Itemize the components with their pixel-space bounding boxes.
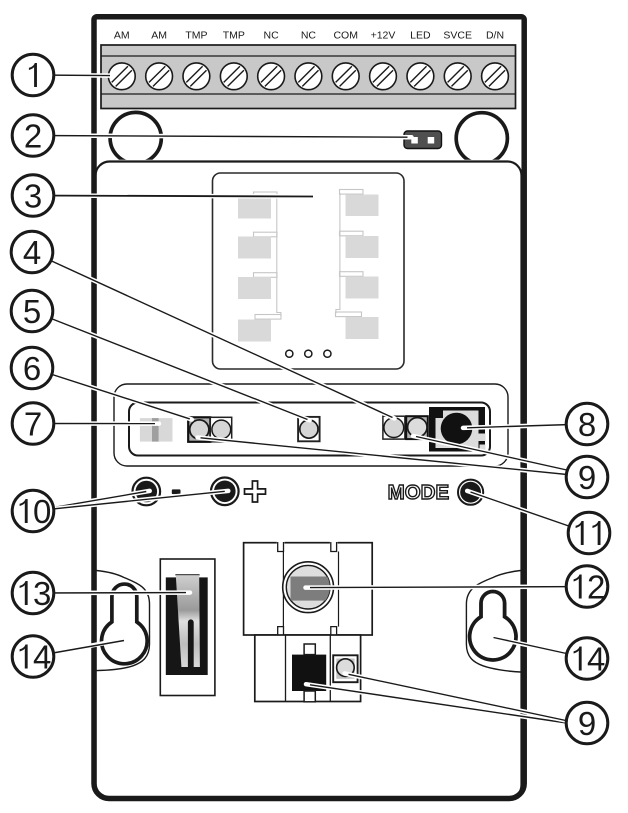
- svg-text:LED: LED: [410, 30, 431, 42]
- svg-text:5: 5: [23, 293, 41, 330]
- svg-text:NC: NC: [301, 30, 317, 42]
- svg-text:AM: AM: [151, 30, 167, 42]
- svg-text:8: 8: [578, 406, 596, 443]
- svg-text:7: 7: [24, 406, 42, 443]
- svg-text:+12V: +12V: [371, 30, 396, 42]
- svg-text:2: 2: [587, 569, 605, 606]
- svg-text:4: 4: [23, 234, 41, 271]
- svg-text:MODE: MODE: [388, 481, 450, 504]
- svg-text:NC: NC: [264, 30, 280, 42]
- svg-text:D/N: D/N: [486, 30, 504, 42]
- svg-text:0: 0: [33, 493, 51, 530]
- svg-text:3: 3: [24, 178, 42, 215]
- svg-text:4: 4: [33, 639, 51, 676]
- svg-text:SVCE: SVCE: [443, 30, 472, 42]
- svg-text:3: 3: [33, 575, 51, 612]
- svg-text:TMP: TMP: [223, 30, 245, 42]
- svg-text:TMP: TMP: [185, 30, 207, 42]
- svg-text:2: 2: [24, 118, 42, 155]
- svg-text:COM: COM: [333, 30, 358, 42]
- svg-text:9: 9: [578, 705, 596, 742]
- svg-text:4: 4: [587, 641, 605, 678]
- svg-text:AM: AM: [114, 30, 130, 42]
- svg-text:9: 9: [578, 459, 596, 496]
- svg-text:6: 6: [23, 350, 41, 387]
